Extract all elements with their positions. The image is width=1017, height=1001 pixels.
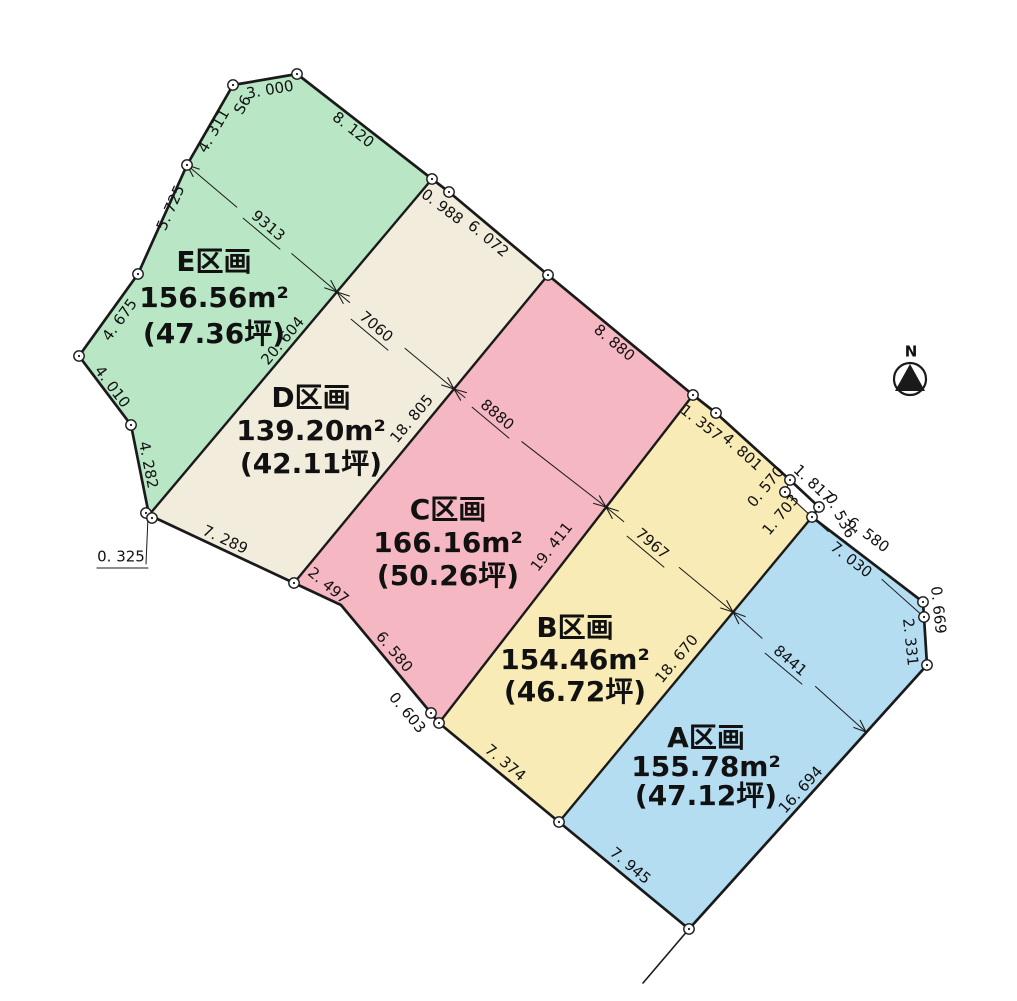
survey-point-dot-22 (438, 722, 440, 724)
plot-B-area-tsubo: (46.72坪) (504, 675, 646, 708)
survey-point-dot-3 (137, 273, 139, 275)
edge-label-0325: 0. 325 (97, 548, 145, 566)
plot-C-area-m2: 166.16m² (373, 526, 523, 559)
survey-point-dot-13 (789, 479, 791, 481)
edge-label-14: 0. 669 (927, 585, 950, 634)
survey-point-dot-5 (130, 424, 132, 426)
survey-point-dot-10 (547, 274, 549, 276)
survey-point-dot-21 (558, 821, 560, 823)
survey-point-dot-12 (715, 412, 717, 414)
survey-point-dot-15 (818, 506, 820, 508)
survey-point-dot-6 (145, 512, 147, 514)
survey-point-dot-14 (784, 491, 786, 493)
plot-D-name: D区画 (271, 381, 350, 414)
survey-point-dot-19 (926, 664, 928, 666)
survey-point-dot-11 (692, 394, 694, 396)
compass-north-label: N (905, 343, 918, 361)
plot-B-area-m2: 154.46m² (500, 643, 650, 676)
survey-point-dot-24 (293, 582, 295, 584)
plot-D-area-m2: 139.20m² (236, 414, 386, 447)
survey-point-dot-9 (448, 191, 450, 193)
boundary-tail (643, 929, 689, 983)
leader-line-0325 (146, 517, 148, 564)
plan-canvas: 931370608880796784417. 0300. 3253. 000S6… (0, 0, 1017, 1001)
survey-point-dot-20 (688, 928, 690, 930)
plot-E-area-tsubo: (47.36坪) (143, 317, 285, 350)
survey-point-dot-16 (811, 516, 813, 518)
survey-point-dot-18 (923, 616, 925, 618)
survey-point-dot-8 (431, 178, 433, 180)
plot-B-name: B区画 (536, 611, 613, 644)
survey-point-dot-0 (296, 73, 298, 75)
plot-D-area-tsubo: (42.11坪) (240, 447, 382, 480)
survey-point-dot-17 (922, 601, 924, 603)
plot-C-area-tsubo: (50.26坪) (377, 559, 519, 592)
plot-E-area-m2: 156.56m² (139, 281, 289, 314)
survey-point-dot-23 (430, 712, 432, 714)
plot-A-area-tsubo: (47.12坪) (635, 779, 777, 812)
survey-point-dot-4 (78, 355, 80, 357)
plot-C-name: C区画 (410, 493, 487, 526)
survey-point-dot-7 (151, 517, 153, 519)
survey-point-dot-2 (186, 164, 188, 166)
land-subdivision-plan: 931370608880796784417. 0300. 3253. 000S6… (0, 0, 1017, 1001)
plot-E-name: E区画 (176, 245, 251, 278)
survey-point-dot-1 (232, 84, 234, 86)
